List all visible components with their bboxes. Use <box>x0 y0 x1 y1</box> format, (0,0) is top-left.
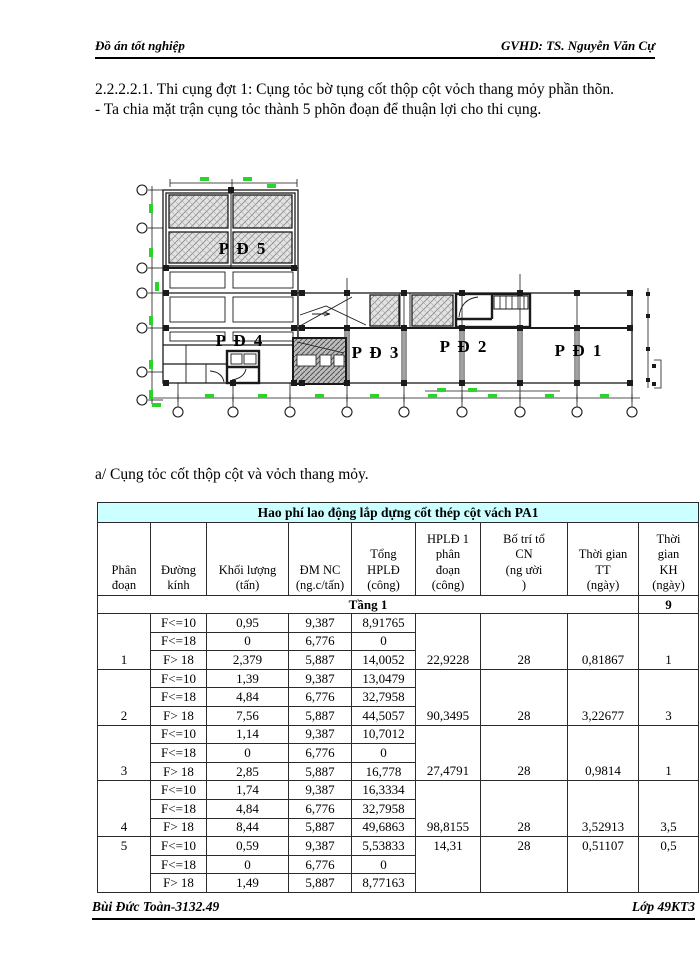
total-cell: 49,6863 <box>352 818 416 837</box>
time-kh-cell: 1 <box>639 614 699 670</box>
time-tt-cell: 0,9814 <box>568 725 639 781</box>
diameter-cell: F<=10 <box>151 837 207 856</box>
diameter-cell: F<=18 <box>151 799 207 818</box>
page-header: Đồ án tốt nghiệp GVHD: TS. Nguyễn Văn Cự <box>95 38 655 59</box>
floor-row: Tầng 1 9 <box>98 596 699 614</box>
norm-cell: 9,387 <box>289 669 352 688</box>
col-header-norm: ĐM NC (ng.c/tấn) <box>289 523 352 596</box>
table-row: 2F<=101,399,38713,047990,3495283,226773 <box>98 669 699 688</box>
floor-kh-value: 9 <box>639 596 699 614</box>
crew-cell: 28 <box>481 614 568 670</box>
total-cell: 16,3334 <box>352 781 416 800</box>
mass-cell: 0 <box>207 744 289 763</box>
pd3-hatch-panels <box>370 293 453 328</box>
labor-table: Hao phí lao động lắp dựng cốt thép cột v… <box>97 502 699 893</box>
table-body: 1F<=100,959,3878,9176522,9228280,818671F… <box>98 614 699 893</box>
floor-label: Tầng 1 <box>98 596 639 614</box>
table-row: 3F<=101,149,38710,701227,4791280,98141 <box>98 725 699 744</box>
table-title: Hao phí lao động lắp dựng cốt thép cột v… <box>98 503 699 523</box>
crew-cell: 28 <box>481 725 568 781</box>
total-cell: 10,7012 <box>352 725 416 744</box>
diameter-cell: F<=10 <box>151 781 207 800</box>
total-cell: 32,7958 <box>352 799 416 818</box>
norm-cell: 9,387 <box>289 614 352 633</box>
table-row: 5F<=100,599,3875,5383314,31280,511070,5 <box>98 837 699 856</box>
zone-label-pd4: P Đ 4 <box>216 331 265 350</box>
norm-cell: 6,776 <box>289 632 352 651</box>
diameter-cell: F<=18 <box>151 688 207 707</box>
hpld-cell: 98,8155 <box>416 781 481 837</box>
norm-cell: 9,387 <box>289 781 352 800</box>
mass-cell: 1,74 <box>207 781 289 800</box>
diameter-cell: F> 18 <box>151 651 207 670</box>
zone-label-pd3: P Đ 3 <box>352 343 401 362</box>
crew-cell: 28 <box>481 669 568 725</box>
col-header-diameter: Đường kính <box>151 523 207 596</box>
norm-cell: 9,387 <box>289 837 352 856</box>
total-cell: 16,778 <box>352 762 416 781</box>
diameter-cell: F> 18 <box>151 874 207 893</box>
hpld-cell: 22,9228 <box>416 614 481 670</box>
col-header-segment: Phân đoạn <box>98 523 151 596</box>
total-cell: 13,0479 <box>352 669 416 688</box>
section-heading: 2.2.2.2.1. Thi cụng đợt 1: Cụng tỏc bờ t… <box>95 80 649 100</box>
norm-cell: 6,776 <box>289 744 352 763</box>
norm-cell: 5,887 <box>289 651 352 670</box>
total-cell: 8,91765 <box>352 614 416 633</box>
crew-cell: 28 <box>481 837 568 893</box>
mass-cell: 1,39 <box>207 669 289 688</box>
page-footer: Bùi Đức Toàn-3132.49 Lớp 49KT3 <box>92 899 695 920</box>
norm-cell: 6,776 <box>289 799 352 818</box>
total-cell: 0 <box>352 744 416 763</box>
norm-cell: 6,776 <box>289 855 352 874</box>
mass-cell: 1,14 <box>207 725 289 744</box>
total-cell: 14,0052 <box>352 651 416 670</box>
col-header-hpld: HPLĐ 1 phân đoạn (công) <box>416 523 481 596</box>
diameter-cell: F<=10 <box>151 669 207 688</box>
hpld-cell: 14,31 <box>416 837 481 893</box>
header-right-text: GVHD: TS. Nguyễn Văn Cự <box>501 38 655 54</box>
segment-cell: 5 <box>98 837 151 893</box>
mass-cell: 7,56 <box>207 706 289 725</box>
zone-label-pd2: P Đ 2 <box>440 337 489 356</box>
bullet-line: - Ta chia mặt trận cụng tỏc thành 5 phõn… <box>95 100 649 120</box>
mass-cell: 0 <box>207 855 289 874</box>
col-header-crew: Bố trí tổ CN (ng ười ) <box>481 523 568 596</box>
diameter-cell: F> 18 <box>151 818 207 837</box>
floor-plan-drawing: P Đ 5 P Đ 4 P Đ 3 P Đ 2 P Đ 1 <box>0 166 700 432</box>
time-tt-cell: 0,81867 <box>568 614 639 670</box>
table-header-row: Phân đoạn Đường kính Khối lượng (tấn) ĐM… <box>98 523 699 596</box>
diameter-cell: F<=10 <box>151 614 207 633</box>
mass-cell: 2,379 <box>207 651 289 670</box>
crew-cell: 28 <box>481 781 568 837</box>
footer-right-text: Lớp 49KT3 <box>632 899 695 915</box>
segment-cell: 4 <box>98 781 151 837</box>
diameter-cell: F<=18 <box>151 632 207 651</box>
table-row: 4F<=101,749,38716,333498,8155283,529133,… <box>98 781 699 800</box>
diameter-cell: F<=18 <box>151 855 207 874</box>
header-left-text: Đồ án tốt nghiệp <box>95 38 185 54</box>
time-kh-cell: 0,5 <box>639 837 699 893</box>
time-kh-cell: 3,5 <box>639 781 699 837</box>
hpld-cell: 27,4791 <box>416 725 481 781</box>
body-paragraph: 2.2.2.2.1. Thi cụng đợt 1: Cụng tỏc bờ t… <box>95 80 649 121</box>
mass-cell: 0 <box>207 632 289 651</box>
zone-label-pd5: P Đ 5 <box>219 239 268 258</box>
labor-table-container: Hao phí lao động lắp dựng cốt thép cột v… <box>97 502 699 893</box>
section-a-heading: a/ Cụng tỏc cốt thộp cột và vỏch thang m… <box>95 466 649 484</box>
footer-left-text: Bùi Đức Toàn-3132.49 <box>92 899 219 915</box>
col-header-time-tt: Thời gian TT (ngày) <box>568 523 639 596</box>
diameter-cell: F<=10 <box>151 725 207 744</box>
total-cell: 32,7958 <box>352 688 416 707</box>
segment-cell: 1 <box>98 614 151 670</box>
mass-cell: 8,44 <box>207 818 289 837</box>
shaded-stair-block <box>293 338 346 384</box>
norm-cell: 5,887 <box>289 706 352 725</box>
col-header-time-kh: Thời gian KH (ngày) <box>639 523 699 596</box>
mass-cell: 1,49 <box>207 874 289 893</box>
time-tt-cell: 0,51107 <box>568 837 639 893</box>
time-tt-cell: 3,22677 <box>568 669 639 725</box>
total-cell: 0 <box>352 855 416 874</box>
mass-cell: 0,59 <box>207 837 289 856</box>
mass-cell: 2,85 <box>207 762 289 781</box>
table-row: 1F<=100,959,3878,9176522,9228280,818671 <box>98 614 699 633</box>
total-cell: 0 <box>352 632 416 651</box>
segment-cell: 2 <box>98 669 151 725</box>
total-cell: 44,5057 <box>352 706 416 725</box>
diameter-cell: F<=18 <box>151 744 207 763</box>
norm-cell: 9,387 <box>289 725 352 744</box>
total-cell: 8,77163 <box>352 874 416 893</box>
pd2-stair-unit <box>456 294 530 327</box>
total-cell: 5,53833 <box>352 837 416 856</box>
time-tt-cell: 3,52913 <box>568 781 639 837</box>
norm-cell: 6,776 <box>289 688 352 707</box>
col-header-total: Tổng HPLĐ (công) <box>352 523 416 596</box>
norm-cell: 5,887 <box>289 874 352 893</box>
time-kh-cell: 1 <box>639 725 699 781</box>
mass-cell: 4,84 <box>207 688 289 707</box>
col-header-mass: Khối lượng (tấn) <box>207 523 289 596</box>
hpld-cell: 90,3495 <box>416 669 481 725</box>
mass-cell: 0,95 <box>207 614 289 633</box>
norm-cell: 5,887 <box>289 818 352 837</box>
mass-cell: 4,84 <box>207 799 289 818</box>
diameter-cell: F> 18 <box>151 706 207 725</box>
time-kh-cell: 3 <box>639 669 699 725</box>
segment-cell: 3 <box>98 725 151 781</box>
zone-label-pd1: P Đ 1 <box>555 341 604 360</box>
norm-cell: 5,887 <box>289 762 352 781</box>
diameter-cell: F> 18 <box>151 762 207 781</box>
